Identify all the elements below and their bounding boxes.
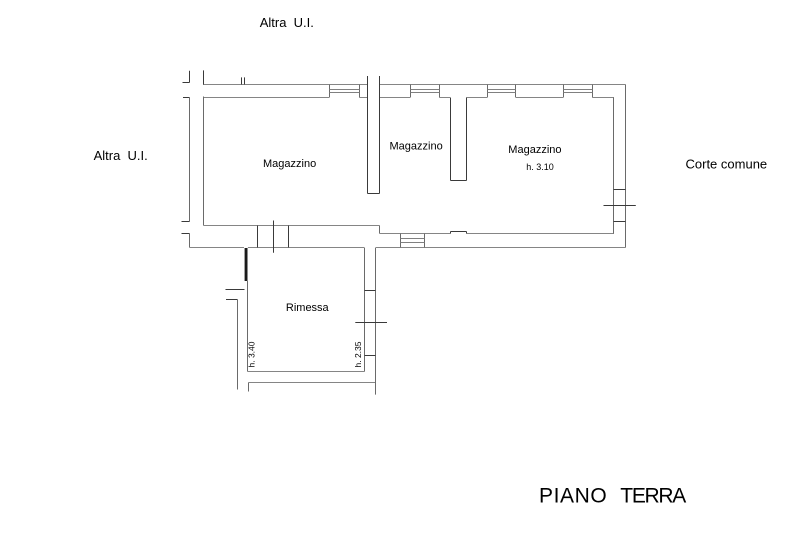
svg-text:h. 3.10: h. 3.10 <box>526 162 554 172</box>
svg-text:h. 2.35: h. 2.35 <box>353 341 363 367</box>
svg-text:PIANO: PIANO <box>539 484 607 507</box>
svg-text:TERRA: TERRA <box>620 484 686 507</box>
svg-text:Rimessa: Rimessa <box>286 302 330 314</box>
svg-text:h. 3.40: h. 3.40 <box>247 341 257 367</box>
svg-text:Magazzino: Magazzino <box>390 141 443 153</box>
svg-text:Magazzino: Magazzino <box>508 144 561 156</box>
svg-text:Altra U.I.: Altra U.I. <box>260 15 314 30</box>
svg-text:Magazzino: Magazzino <box>263 158 316 170</box>
svg-text:Corte comune: Corte comune <box>686 157 768 172</box>
svg-text:Altra U.I.: Altra U.I. <box>94 148 148 163</box>
